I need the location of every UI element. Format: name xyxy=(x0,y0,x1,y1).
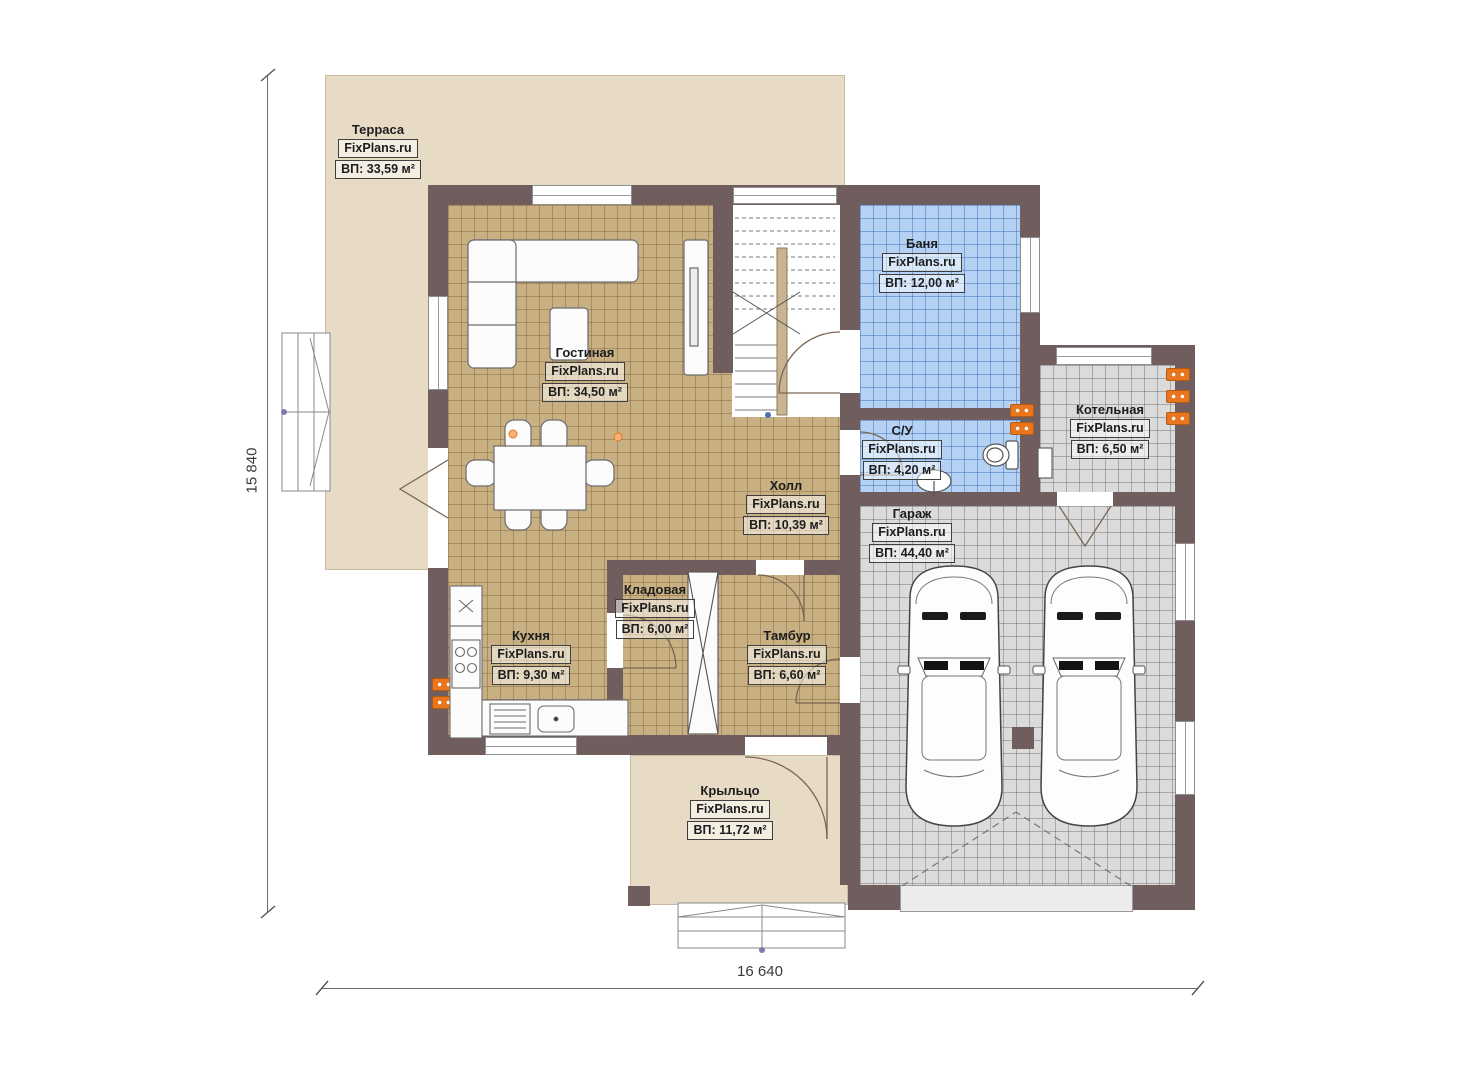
room-watermark: FixPlans.ru xyxy=(882,253,961,272)
window-garage-right-lower xyxy=(1175,721,1195,795)
room-label-boiler: Котельная FixPlans.ru ВП: 6,50 м² xyxy=(1045,402,1175,459)
room-area: ВП: 10,39 м² xyxy=(743,516,829,535)
room-label-hall: Холл FixPlans.ru ВП: 10,39 м² xyxy=(721,478,851,535)
terrace-steps xyxy=(281,333,330,491)
window-garage-right-upper xyxy=(1175,543,1195,621)
room-area: ВП: 12,00 м² xyxy=(879,274,965,293)
room-label-porch: Крыльцо FixPlans.ru ВП: 11,72 м² xyxy=(665,783,795,840)
dimension-line-horizontal xyxy=(322,988,1198,989)
room-name: Кухня xyxy=(466,628,596,643)
stairwell-floor xyxy=(732,205,840,417)
room-name: Кладовая xyxy=(590,582,720,597)
porch-steps xyxy=(678,903,845,953)
door-opening-boiler-garage xyxy=(1057,492,1113,506)
wall-right-outer xyxy=(1175,365,1195,910)
room-watermark: FixPlans.ru xyxy=(747,645,826,664)
room-label-storage: Кладовая FixPlans.ru ВП: 6,00 м² xyxy=(590,582,720,639)
room-watermark: FixPlans.ru xyxy=(545,362,624,381)
room-name: Гостиная xyxy=(520,345,650,360)
room-area: ВП: 11,72 м² xyxy=(687,821,772,840)
room-watermark: FixPlans.ru xyxy=(615,599,694,618)
window-living-top xyxy=(532,185,632,205)
wall-garage-bottom-left xyxy=(848,885,900,910)
room-watermark: FixPlans.ru xyxy=(491,645,570,664)
wall-sauna-wc-divider xyxy=(860,408,1020,420)
wall-garage-bottom-right xyxy=(1133,885,1195,910)
room-name: Котельная xyxy=(1045,402,1175,417)
door-opening-entrance xyxy=(745,737,827,755)
room-area: ВП: 34,50 м² xyxy=(542,383,628,402)
garage-door xyxy=(900,885,1133,912)
dimension-value-horizontal: 16 640 xyxy=(660,963,860,980)
window-boiler-top xyxy=(1056,347,1152,365)
dimension-line-vertical xyxy=(267,75,268,912)
window-stair-top xyxy=(733,187,837,204)
room-watermark: FixPlans.ru xyxy=(338,139,417,158)
dimension-value-vertical: 15 840 xyxy=(244,431,261,511)
radiator-icon xyxy=(1010,404,1034,417)
wall-garage-top xyxy=(860,492,1175,506)
room-area: ВП: 33,59 м² xyxy=(335,160,421,179)
room-label-wc: С/У FixPlans.ru ВП: 4,20 м² xyxy=(837,423,967,480)
radiator-icon xyxy=(432,678,456,691)
room-label-kitchen: Кухня FixPlans.ru ВП: 9,30 м² xyxy=(466,628,596,685)
room-label-sauna: Баня FixPlans.ru ВП: 12,00 м² xyxy=(857,236,987,293)
window-living-left xyxy=(428,296,448,390)
room-name: С/У xyxy=(837,423,967,438)
room-watermark: FixPlans.ru xyxy=(872,523,951,542)
room-name: Баня xyxy=(857,236,987,251)
room-watermark: FixPlans.ru xyxy=(862,440,941,459)
room-watermark: FixPlans.ru xyxy=(690,800,769,819)
room-name: Гараж xyxy=(847,506,977,521)
room-name: Крыльцо xyxy=(665,783,795,798)
door-opening-corridor xyxy=(840,330,860,393)
door-opening-terrace xyxy=(428,448,448,568)
room-label-vestibule: Тамбур FixPlans.ru ВП: 6,60 м² xyxy=(722,628,852,685)
room-area: ВП: 44,40 м² xyxy=(869,544,955,563)
room-area: ВП: 6,50 м² xyxy=(1071,440,1150,459)
room-area: ВП: 4,20 м² xyxy=(863,461,942,480)
room-area: ВП: 6,00 м² xyxy=(616,620,695,639)
window-kitchen-bottom xyxy=(485,737,577,755)
garage-post xyxy=(1012,727,1034,749)
radiator-icon xyxy=(432,696,456,709)
room-name: Тамбур xyxy=(722,628,852,643)
porch-post xyxy=(628,886,650,906)
floor-plan-canvas: 15 840 16 640 Терраса FixPlans.ru ВП: 33… xyxy=(0,0,1474,1080)
room-label-living: Гостиная FixPlans.ru ВП: 34,50 м² xyxy=(520,345,650,402)
window-sauna-right xyxy=(1020,237,1040,313)
radiator-icon xyxy=(1166,368,1190,381)
wall-storage-vestibule-top xyxy=(607,560,840,575)
room-watermark: FixPlans.ru xyxy=(1070,419,1149,438)
room-watermark: FixPlans.ru xyxy=(746,495,825,514)
door-opening-hall-vestibule xyxy=(756,560,804,575)
room-name: Терраса xyxy=(313,122,443,137)
radiator-icon xyxy=(1010,422,1034,435)
room-area: ВП: 6,60 м² xyxy=(748,666,827,685)
wall-stair-left xyxy=(713,205,733,373)
room-name: Холл xyxy=(721,478,851,493)
room-label-terrace: Терраса FixPlans.ru ВП: 33,59 м² xyxy=(313,122,443,179)
room-label-garage: Гараж FixPlans.ru ВП: 44,40 м² xyxy=(847,506,977,563)
room-area: ВП: 9,30 м² xyxy=(492,666,571,685)
